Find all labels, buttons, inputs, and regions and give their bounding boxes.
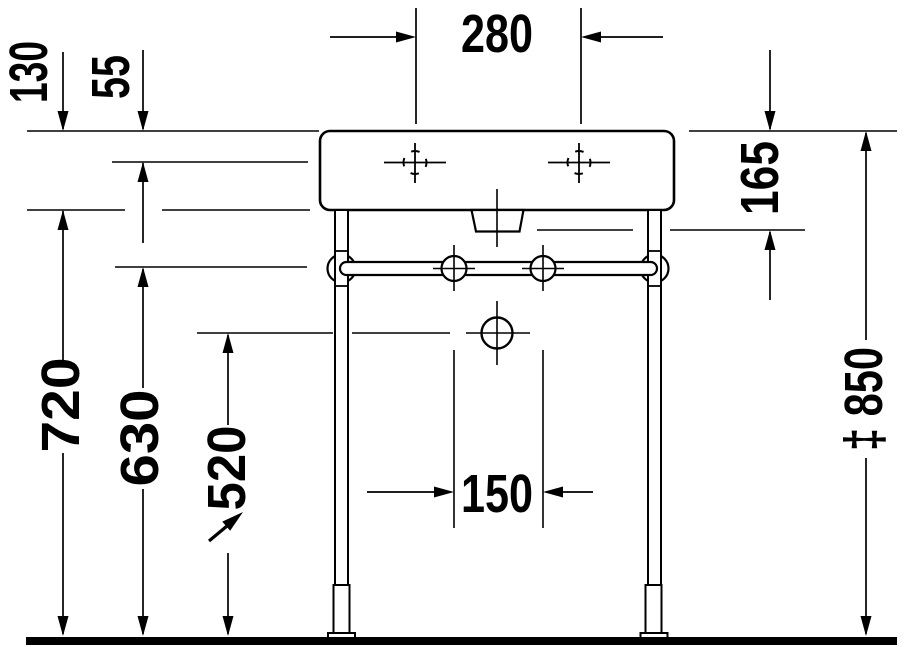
dim-55-arrowhead-up [138, 162, 149, 182]
dim-850-arrowhead-down [861, 616, 872, 636]
dim-130-arrowhead-down [58, 111, 69, 131]
washbasin-console-front-elevation: 280 130 55 720 630 520 [0, 0, 905, 647]
dim-165-arrowhead-down [765, 111, 776, 131]
dim-165-arrowhead-up [765, 230, 776, 250]
dim-850-arrowhead-up [861, 131, 872, 151]
foot-tube-left [334, 585, 350, 633]
technical-drawing-page: 280 130 55 720 630 520 [0, 0, 905, 647]
dim-label-55: 55 [81, 55, 141, 99]
dim-label-150: 150 [461, 464, 533, 524]
dim-150-arrowhead-left [434, 487, 454, 498]
dimension-rim-to-outlet-bottom: 165 [730, 50, 790, 300]
dim-520-arrowhead-up [223, 333, 234, 353]
dim-label-520: 520 [197, 426, 257, 511]
floor-line [26, 637, 897, 645]
dim-label-850: ‡ 850 [834, 347, 894, 451]
dim-520-leader-line [209, 526, 227, 541]
dim-630-arrowhead-up [138, 267, 149, 287]
dim-150-arrowhead-right [543, 487, 563, 498]
dim-label-165: 165 [730, 141, 790, 215]
dim-720-arrowhead-up [58, 210, 69, 230]
dim-label-130: 130 [0, 41, 59, 103]
rail-fixing-left [433, 245, 475, 291]
dim-label-280: 280 [461, 4, 533, 64]
dimension-rim-to-tap-axis: 55 [81, 50, 149, 243]
dimension-floor-to-drain-axis: 520 [197, 333, 257, 636]
dim-label-720: 720 [31, 358, 91, 453]
dim-720-arrowhead-down [58, 616, 69, 636]
dim-55-arrowhead-down [138, 111, 149, 131]
dimension-rim-to-body-bottom: 130 [0, 41, 69, 131]
drain-connection [466, 301, 530, 365]
dim-280-arrowhead-left [396, 32, 416, 43]
dim-label-630: 630 [110, 390, 170, 487]
dimension-floor-to-towel-rail: 630 [110, 267, 170, 636]
rail-fixing-right [522, 245, 564, 291]
dimension-tap-hole-spacing: 280 [330, 4, 663, 124]
dimension-overall-height: ‡ 850 [834, 131, 894, 636]
dimension-fixing-spacing: 150 [367, 464, 593, 524]
towel-rail [340, 262, 657, 275]
dim-630-arrowhead-down [138, 616, 149, 636]
foot-tube-right [646, 585, 662, 633]
dimension-floor-to-basin-bottom: 720 [31, 210, 91, 636]
dim-280-arrowhead-right [581, 32, 601, 43]
dim-520-arrowhead-down [223, 616, 234, 636]
